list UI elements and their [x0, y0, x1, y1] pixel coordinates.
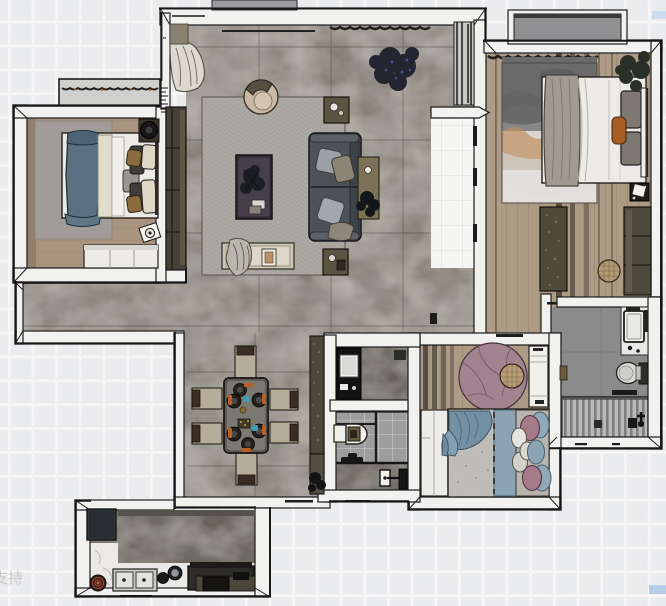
svg-text:支持: 支持 — [0, 570, 23, 587]
